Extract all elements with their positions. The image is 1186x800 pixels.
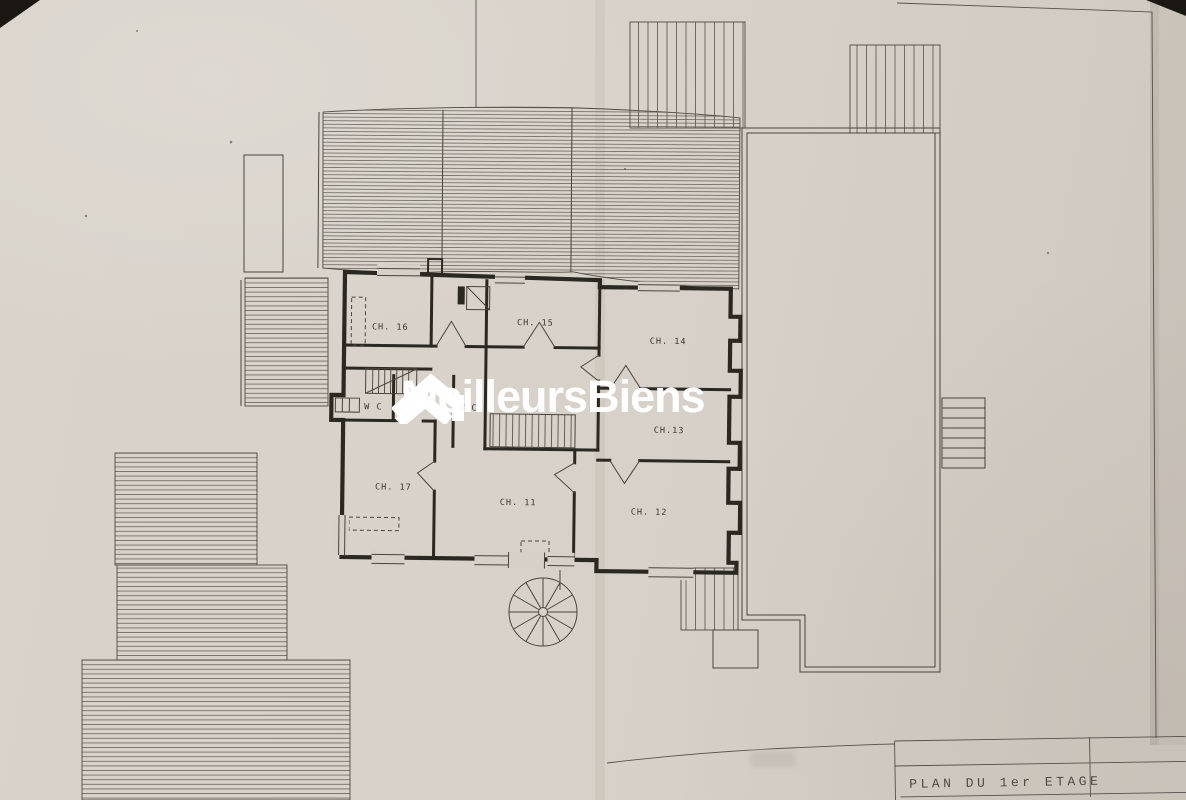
garden-terraces-hatch (82, 453, 350, 800)
room-label-ch12: CH. 12 (631, 508, 668, 518)
plan-title: PLAN DU 1er ETAGE (909, 774, 1101, 792)
redacted-stamp (750, 751, 796, 767)
annex-outline (244, 155, 283, 272)
roof-hatch (318, 106, 740, 289)
garden-stairs (681, 568, 758, 668)
terrace-side-stairs (942, 398, 985, 468)
room-label-ch11: CH. 11 (500, 498, 537, 508)
room-label-ch14: CH. 14 (650, 337, 687, 347)
radiator (335, 398, 359, 412)
room-label-ch17: CH. 17 (375, 482, 412, 492)
room-label-ch15: CH. 15 (517, 318, 554, 328)
room-label-ch16: CH. 16 (372, 322, 409, 332)
left-porch-hatch (241, 278, 328, 406)
room-label-ch13: CH.13 (654, 426, 685, 436)
terrace-outline (742, 128, 940, 672)
watermark-house-logo (392, 368, 472, 424)
balcony-strip-hatch (630, 22, 940, 133)
watermark: MeilleursBiens (392, 368, 705, 426)
title-block: PLAN DU 1er ETAGE (895, 735, 1186, 800)
room-label-wc-left: W C (364, 402, 382, 412)
photo-corner-shadows (0, 0, 1186, 28)
scanned-floor-plan-photo: CH. 16 CH. 15 CH. 14 CH.13 CH. 17 CH. 11… (0, 0, 1186, 800)
